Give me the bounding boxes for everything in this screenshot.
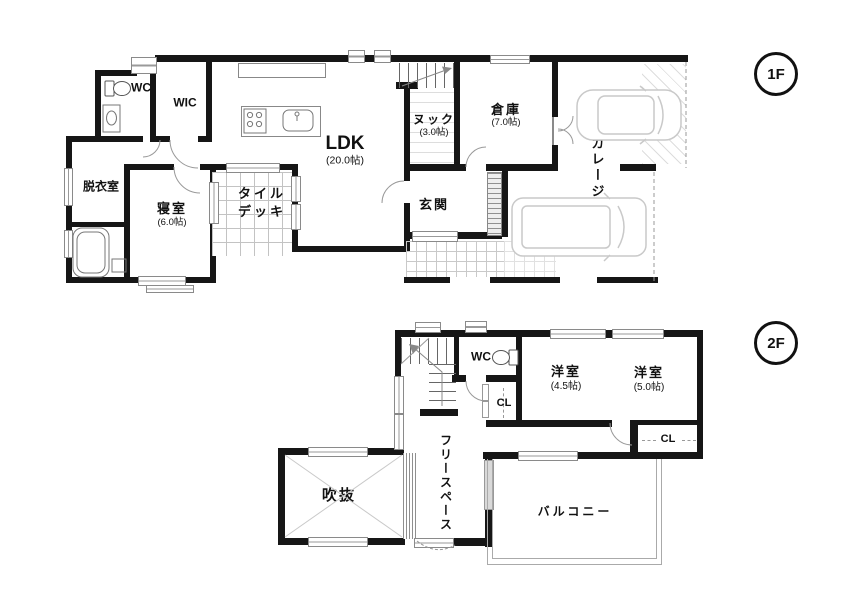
window (131, 57, 157, 74)
wall-segment (486, 375, 520, 382)
room-label-bedroom1: 洋室 (551, 365, 581, 379)
window (308, 537, 368, 547)
wall-segment (502, 171, 508, 237)
kitchen-island (241, 106, 321, 137)
wall-segment (697, 330, 703, 459)
room-label-wc-2f: WC (471, 351, 491, 364)
wall-segment (486, 420, 612, 427)
garage-hatch-area (642, 64, 686, 164)
stairs-1f (399, 63, 455, 88)
wall-segment (552, 62, 558, 117)
room-label-bedroom2: 洋室 (634, 366, 664, 380)
window (550, 329, 606, 339)
entrance-sliding-door (412, 231, 458, 242)
room-size-ldk: (20.0帖) (326, 155, 364, 166)
shutter-box (146, 285, 194, 293)
room-label-free-space: フリースペース (438, 434, 455, 532)
fixtures-overlay (0, 0, 842, 595)
floor-plan-canvas: WC WIC 脱衣室 寝室 (6.0帖) UB タイル デッキ LDK (20.… (0, 0, 842, 595)
room-label-balcony: バルコニー (538, 506, 613, 519)
wall-segment (404, 203, 410, 246)
wall-segment (483, 452, 703, 459)
room-label-wic: WIC (173, 97, 196, 110)
room-label-entrance: 玄関 (419, 198, 449, 212)
washbasin-icon (103, 105, 120, 132)
room-size-bedroom2: (5.0帖) (634, 383, 665, 394)
wall-segment (66, 136, 72, 283)
window (490, 55, 530, 64)
floor-badge-2f: 2F (754, 321, 798, 365)
room-label-wc-1f: WC (131, 82, 151, 95)
closet-bifold-door (482, 384, 489, 401)
wall-segment (404, 277, 450, 283)
closet-bifold-door (482, 401, 489, 418)
floor-badge-1f: 1F (754, 52, 798, 96)
window (291, 204, 301, 230)
window (209, 182, 219, 224)
wall-segment (95, 136, 143, 142)
stairs-2f-lower (429, 364, 456, 409)
room-label-ldk: LDK (325, 134, 364, 154)
vent-window (348, 50, 365, 63)
wall-segment (66, 222, 126, 227)
balcony-access-door (414, 538, 454, 548)
room-label-bath: UB (90, 247, 110, 262)
wall-segment (155, 55, 688, 62)
wall-segment (552, 145, 558, 171)
stairs-2f-upper (401, 338, 455, 364)
toilet-2f-icon (493, 350, 519, 365)
window (64, 168, 73, 206)
shoe-cabinet (487, 172, 502, 236)
toilet-1f-icon (105, 81, 131, 96)
room-label-nook: ヌック (413, 114, 455, 127)
vent-window (374, 50, 391, 63)
room-label-closet-upper: CL (497, 398, 512, 410)
wall-segment (124, 225, 130, 283)
room-size-bedroom: (6.0帖) (157, 218, 186, 228)
vent-window (415, 322, 441, 333)
room-label-closet-lower: CL (658, 434, 679, 446)
wall-segment (486, 164, 558, 171)
wall-segment (278, 448, 285, 545)
walkway-tiles (504, 241, 556, 277)
wall-segment (404, 171, 410, 181)
wall-segment (620, 164, 656, 171)
room-label-void: 吹抜 (322, 488, 356, 504)
wall-segment (130, 164, 174, 170)
room-label-garage: ガレージ (588, 136, 607, 200)
wall-segment (292, 246, 410, 252)
closet-rod (642, 440, 656, 441)
wall-segment (66, 277, 128, 283)
room-size-nook: (3.0帖) (419, 128, 448, 138)
room-label-storage: 倉庫 (491, 103, 521, 117)
wall-segment (420, 409, 458, 416)
wall-segment (404, 164, 456, 171)
window (64, 230, 73, 258)
wall-segment (638, 420, 697, 425)
wall-segment (630, 420, 638, 459)
wall-segment (490, 277, 560, 283)
wall-segment (150, 136, 170, 142)
room-label-tile-deck-1: タイル (238, 187, 286, 201)
slat-screen (403, 453, 418, 539)
room-label-bedroom: 寝室 (157, 202, 187, 216)
window (394, 414, 404, 450)
kitchen-counter (238, 63, 326, 78)
window (394, 376, 404, 414)
wall-segment (124, 164, 130, 225)
entrance-porch-tiles (406, 241, 504, 277)
wall-segment (206, 57, 212, 142)
room-size-storage: (7.0帖) (491, 118, 520, 128)
window (612, 329, 664, 339)
room-label-dressing: 脱衣室 (83, 181, 119, 194)
wall-thin (552, 117, 554, 145)
wall-segment (597, 277, 658, 283)
window (291, 176, 301, 202)
wall-segment (95, 70, 101, 142)
window (308, 447, 368, 457)
wall-segment (456, 164, 466, 171)
room-size-bedroom1: (4.5帖) (551, 382, 582, 393)
room-label-tile-deck-2: デッキ (238, 205, 286, 219)
vent-window (465, 321, 487, 333)
window (226, 163, 280, 173)
closet-rod (682, 440, 696, 441)
